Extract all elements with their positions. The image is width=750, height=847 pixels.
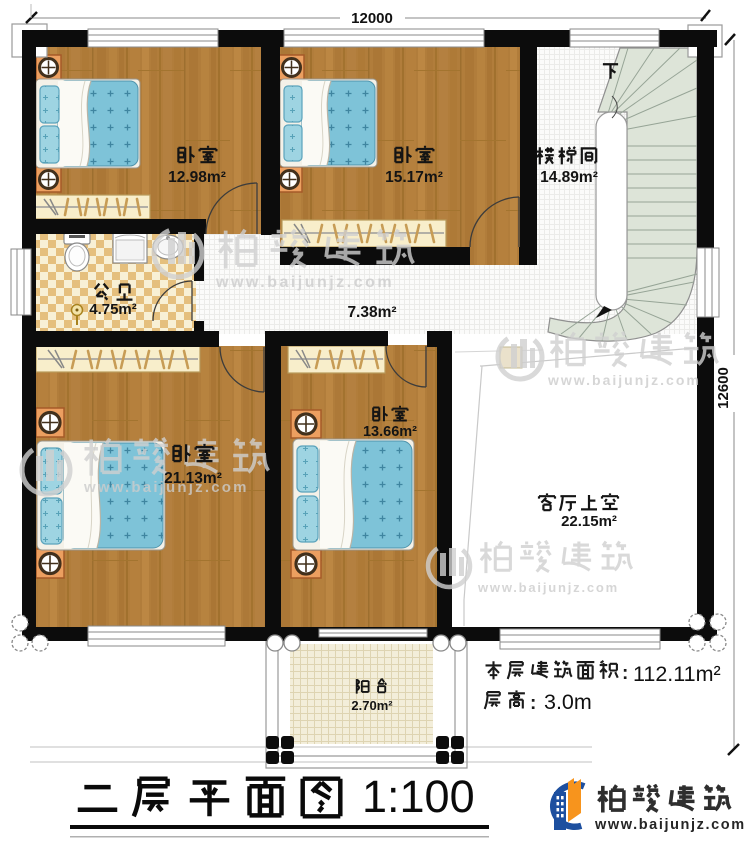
svg-text:www.baijunjz.com: www.baijunjz.com <box>547 372 701 388</box>
svg-text:7.38m²: 7.38m² <box>347 304 396 321</box>
svg-text:12.98m²: 12.98m² <box>168 169 226 186</box>
svg-text:15.17m²: 15.17m² <box>385 169 443 186</box>
svg-text:2.70m²: 2.70m² <box>351 698 393 713</box>
svg-text:www.baijunjz.com: www.baijunjz.com <box>477 580 619 595</box>
svg-text:12600: 12600 <box>715 367 732 409</box>
svg-text::: : <box>622 663 628 684</box>
svg-text:112.11m²: 112.11m² <box>633 662 721 686</box>
svg-text:1:100: 1:100 <box>362 771 475 822</box>
svg-text:www.baijunjz.com: www.baijunjz.com <box>594 817 746 833</box>
svg-text:21.13m²: 21.13m² <box>164 470 222 487</box>
svg-text:14.89m²: 14.89m² <box>540 169 598 186</box>
svg-text::: : <box>530 693 536 714</box>
svg-text:www.baijunjz.com: www.baijunjz.com <box>215 274 394 291</box>
svg-text:3.0m: 3.0m <box>544 690 592 714</box>
svg-text:13.66m²: 13.66m² <box>363 424 417 440</box>
svg-text:4.75m²: 4.75m² <box>89 301 137 318</box>
svg-text:12000: 12000 <box>351 10 393 27</box>
svg-text:22.15m²: 22.15m² <box>561 513 617 530</box>
